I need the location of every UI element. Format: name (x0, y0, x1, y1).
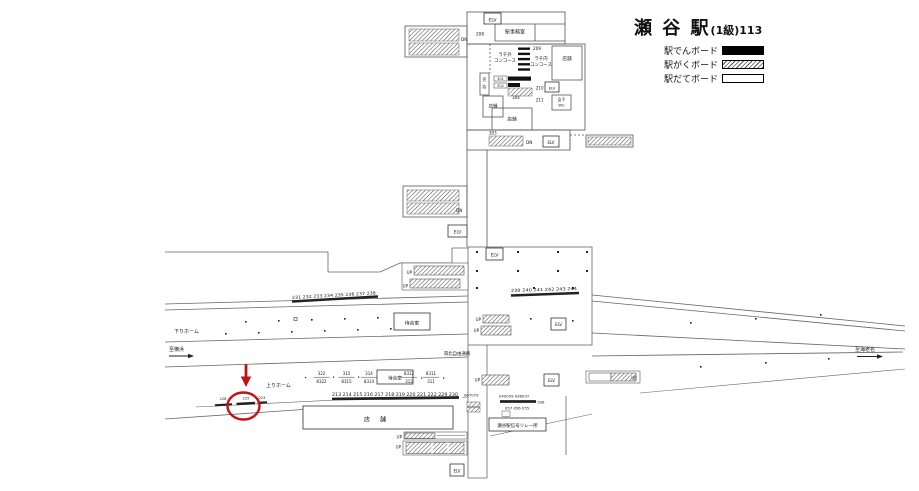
board-211: 211 (536, 98, 544, 103)
up-left-row1: UP (407, 270, 413, 275)
up-left-row2: UP (403, 284, 409, 289)
svg-text:8315: 8315 (341, 379, 352, 384)
ticket-gates (518, 48, 530, 71)
elv-top-label: ELV (488, 18, 497, 24)
shop-right-label: 店舗 (562, 55, 572, 62)
elv-south-label: ELV (453, 468, 460, 473)
svg-text:314: 314 (365, 371, 373, 376)
up-mid-down2: UP (474, 328, 480, 333)
small-hatched-boards (467, 402, 510, 418)
elv-down-platform-label: ELV (555, 322, 562, 327)
board-067079: 067079 (464, 393, 479, 398)
stack-322-8322: 3228322 (316, 371, 327, 384)
stack-314-8314: 3148314 (364, 371, 375, 384)
shop-left-label: 店舗 (489, 103, 498, 110)
concourse-outside-line1: ラチ外 (498, 51, 512, 58)
up-right-label: UP (631, 376, 637, 381)
up-south-row2: UP (396, 445, 402, 450)
elv-up-platform-label: ELV (548, 378, 555, 383)
board-303-hatched (489, 136, 523, 146)
highlight-arrow-head (241, 377, 251, 388)
lower-texts: ELV UP UP 231 232 233 234 235 236 237 23… (169, 253, 875, 474)
station-office-label: 駅事務室 (505, 29, 525, 36)
board-cluster-line1: 040039 038037 (499, 394, 530, 399)
stack-8311-311: 8311311 (426, 371, 437, 384)
board-301-black (508, 77, 531, 81)
board-304: 304 (512, 95, 520, 100)
concourse-outside-line2: コンコース (494, 58, 516, 64)
station-diagram-page: 瀬 谷 駅(1級)113 駅でんボード 駅がくボード 駅だてボード (0, 0, 919, 491)
board-209: 209 (533, 46, 541, 51)
up-south-row1: UP (397, 435, 403, 440)
board-bar-213-230 (332, 398, 459, 400)
station-diagram-svg: ELV 駅事務室 208 209 DN ラチ外 コンコース ラチ内 コンコース … (0, 0, 919, 491)
dn-bottom: DN (456, 208, 462, 213)
board-row-213-230: 213 214 215 216 217 218 219 220 221 222 … (332, 392, 458, 397)
board-cluster-line2: 036 (538, 401, 546, 405)
concourse-inside-line2: コンコース (530, 62, 552, 68)
upper-elevator-boxes (448, 13, 559, 237)
to-yokohama-label: 至横浜 (169, 346, 184, 353)
dn-upper-left: DN (461, 37, 467, 42)
up-mid-down1: UP (476, 317, 482, 322)
upper-texts: ELV 駅事務室 208 209 DN ラチ外 コンコース ラチ内 コンコース … (454, 18, 572, 235)
elv-low-label: ELV (547, 140, 554, 145)
svg-text:8312: 8312 (404, 371, 415, 376)
board-303: 303 (489, 131, 497, 136)
board-226: 226 (220, 397, 227, 401)
womens-wc-line2: WC (558, 103, 565, 108)
passage-label: 南北自由通路 (444, 350, 471, 357)
board-224: 224 (259, 396, 266, 400)
stack-315-8315: 3158315 (341, 371, 352, 384)
svg-text:8311: 8311 (426, 371, 437, 376)
direction-arrows (169, 354, 883, 359)
svg-text:311: 311 (427, 379, 435, 384)
kiosk-label-2: 店 (482, 83, 486, 90)
relay-office-label: 瀬谷駅信号リレー所 (497, 422, 538, 429)
elv-bridge-bottom-label: ELV (454, 230, 462, 235)
svg-text:312: 312 (405, 379, 413, 384)
board-225-circled: 225 (243, 396, 250, 400)
board-302: 302 (497, 84, 504, 88)
upper-black-boards (508, 77, 531, 88)
board-cluster-line3: 057 056 055 (505, 406, 530, 411)
up-mid-up: UP (475, 378, 481, 383)
dn-mid: DN (526, 140, 532, 145)
elv-mid-label: ELV (549, 85, 556, 90)
to-ebina-label: 至海老名 (855, 346, 875, 353)
down-platform-label: 下りホーム (174, 329, 199, 335)
svg-text:315: 315 (343, 371, 351, 376)
platform-lines (165, 247, 905, 478)
board-bar-239-244 (511, 293, 579, 296)
board-row-239-244: 239 240 241 242 243 244 (511, 286, 578, 293)
highlight-annotation (228, 365, 260, 420)
board-bar-226 (215, 404, 232, 405)
board-208: 208 (476, 32, 484, 37)
shop-big-label: 店 舗 (364, 416, 390, 424)
svg-text:8322: 8322 (316, 379, 327, 384)
board-bar-225 (237, 403, 256, 404)
elv-north-label: ELV (491, 253, 499, 259)
upper-floor-plan: ELV 駅事務室 208 209 DN ラチ外 コンコース ラチ内 コンコース … (403, 12, 633, 247)
board-301: 301 (497, 77, 504, 81)
lower-platform-plan: ELV UP UP 231 232 233 234 235 236 237 23… (165, 247, 905, 478)
kiosk-label-1: 売 (482, 76, 486, 83)
waiting-room-down-label: 待合室 (405, 320, 420, 327)
concourse-inside-line1: ラチ内 (534, 55, 547, 62)
svg-text:8314: 8314 (364, 379, 375, 384)
board-302-black (508, 83, 520, 87)
shop-center-label: 店舗 (507, 116, 517, 123)
womens-wc-line1: 女子 (558, 97, 566, 102)
waiting-room-up-label: 待合室 (388, 375, 402, 382)
svg-text:322: 322 (318, 371, 326, 376)
board-210: 210 (536, 86, 544, 91)
up-platform-label: 上りホーム (266, 382, 291, 389)
